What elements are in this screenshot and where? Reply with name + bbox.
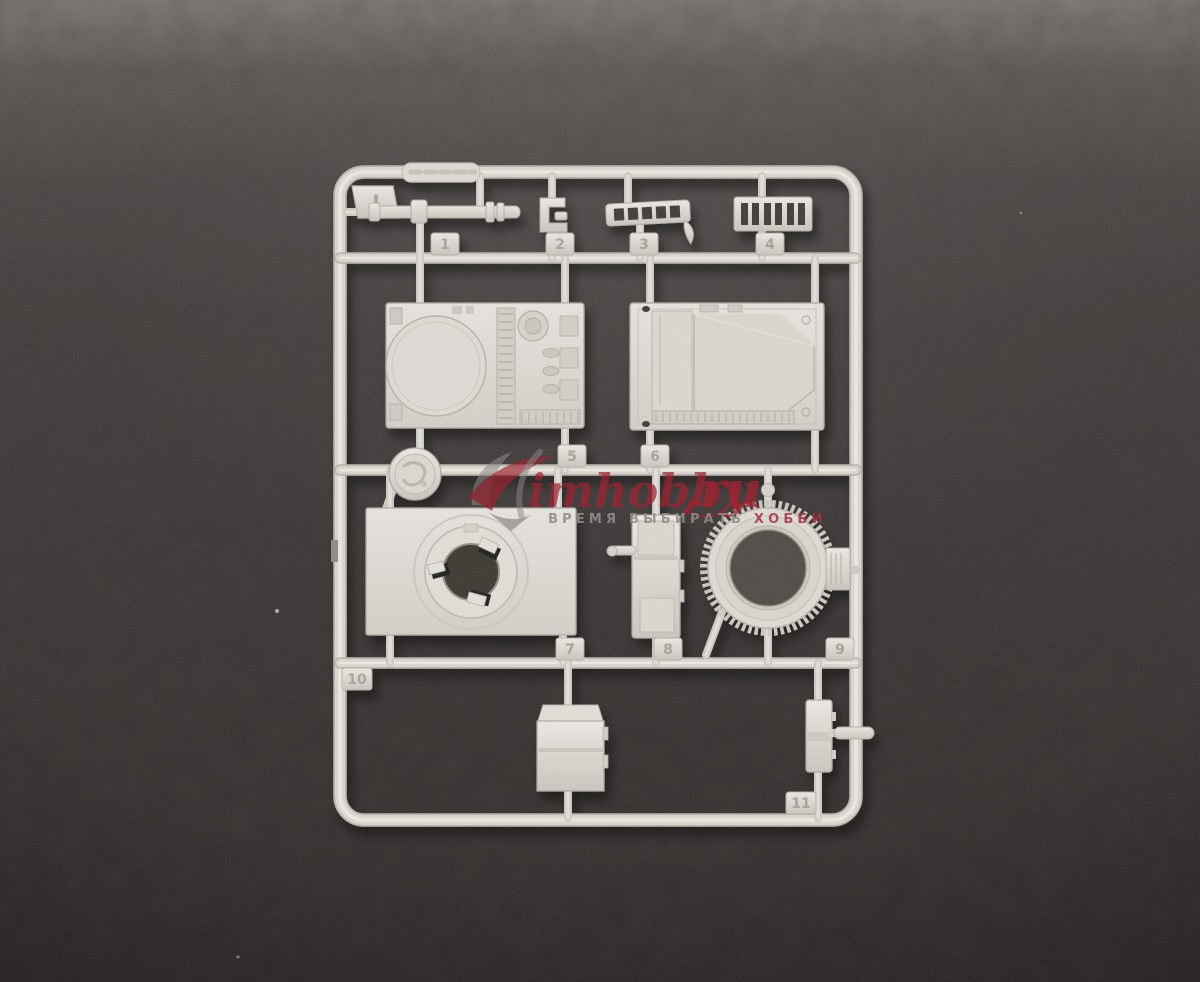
watermark-tagline: ВРЕМЯ ВЫБИРАТЬ ХОББИ (548, 512, 827, 527)
watermark-tagline-gray: ВРЕМЯ ВЫБИРАТЬ (548, 512, 745, 527)
sprue-photo-svg: J (0, 0, 1200, 982)
watermark-tld-text: ,ru (681, 460, 762, 519)
photo-scene: J (0, 0, 1200, 982)
watermark-tagline-red: ХОББИ (745, 512, 827, 527)
